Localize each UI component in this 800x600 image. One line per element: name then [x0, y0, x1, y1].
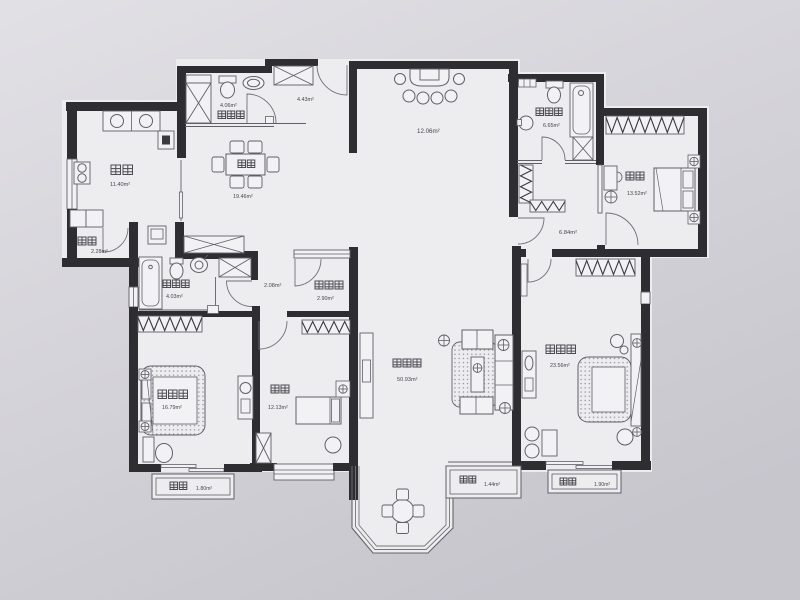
svg-text:19.46m²: 19.46m²	[233, 194, 253, 200]
svg-text:12.06m²: 12.06m²	[417, 128, 440, 135]
svg-text:4.43m²: 4.43m²	[297, 97, 314, 103]
svg-text:23.56m²: 23.56m²	[550, 363, 570, 369]
svg-text:1.80m²: 1.80m²	[196, 486, 212, 492]
svg-text:50.93m²: 50.93m²	[397, 377, 418, 383]
svg-text:6.65m²: 6.65m²	[543, 123, 560, 129]
svg-text:16.79m²: 16.79m²	[162, 405, 182, 411]
svg-text:2.08m²: 2.08m²	[264, 283, 282, 289]
svg-text:2.28m²: 2.28m²	[91, 249, 108, 255]
svg-text:13.52m²: 13.52m²	[627, 191, 647, 197]
svg-text:1.44m²: 1.44m²	[484, 482, 500, 488]
svg-text:11.40m²: 11.40m²	[110, 182, 130, 188]
svg-text:12.13m²: 12.13m²	[268, 405, 288, 411]
svg-text:4.03m²: 4.03m²	[166, 294, 183, 300]
svg-text:1.90m²: 1.90m²	[594, 482, 610, 488]
svg-text:4.06m²: 4.06m²	[220, 103, 237, 109]
svg-text:2.90m²: 2.90m²	[317, 296, 334, 302]
svg-text:6.84m²: 6.84m²	[559, 230, 577, 236]
